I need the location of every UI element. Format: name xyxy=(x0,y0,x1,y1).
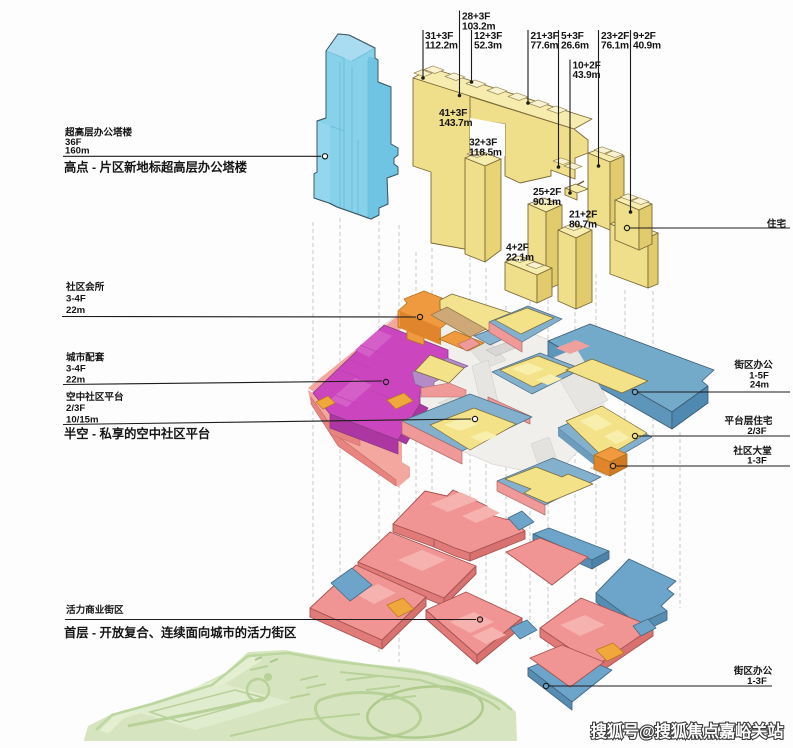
svg-text:城市配套: 城市配套 xyxy=(66,352,105,364)
svg-text:高点 - 片区新地标超高层办公塔楼: 高点 - 片区新地标超高层办公塔楼 xyxy=(64,160,248,175)
svg-text:半空 - 私享的空中社区平台: 半空 - 私享的空中社区平台 xyxy=(64,426,210,441)
svg-text:搜狐号@搜狐焦点嘉峪关站: 搜狐号@搜狐焦点嘉峪关站 xyxy=(591,722,784,741)
svg-text:43.9m: 43.9m xyxy=(573,70,601,81)
svg-text:24m: 24m xyxy=(750,380,769,391)
svg-text:40.9m: 40.9m xyxy=(633,41,661,52)
svg-text:26.6m: 26.6m xyxy=(561,41,589,52)
svg-text:1-3F: 1-3F xyxy=(747,456,767,467)
svg-text:76.1m: 76.1m xyxy=(601,41,629,52)
svg-text:3-4F: 3-4F xyxy=(66,294,86,305)
svg-text:22m: 22m xyxy=(66,305,85,316)
svg-text:街区办公: 街区办公 xyxy=(733,359,773,371)
svg-text:2/3F: 2/3F xyxy=(66,403,85,414)
svg-text:1-3F: 1-3F xyxy=(747,676,767,687)
svg-text:22.1m: 22.1m xyxy=(506,252,534,263)
svg-text:首层 - 开放复合、连续面向城市的活力街区: 首层 - 开放复合、连续面向城市的活力街区 xyxy=(64,625,296,640)
svg-text:118.5m: 118.5m xyxy=(469,147,502,158)
svg-text:社区会所: 社区会所 xyxy=(65,281,105,293)
svg-text:52.3m: 52.3m xyxy=(474,41,502,52)
svg-text:3-4F: 3-4F xyxy=(66,364,86,375)
svg-text:2/3F: 2/3F xyxy=(747,426,766,437)
svg-text:160m: 160m xyxy=(65,146,90,157)
svg-text:143.7m: 143.7m xyxy=(439,118,472,129)
svg-text:77.6m: 77.6m xyxy=(531,41,559,52)
svg-text:112.2m: 112.2m xyxy=(425,41,458,52)
svg-text:90.1m: 90.1m xyxy=(533,197,561,208)
svg-text:80.7m: 80.7m xyxy=(569,219,597,230)
svg-text:空中社区平台: 空中社区平台 xyxy=(66,391,124,403)
svg-text:活力商业街区: 活力商业街区 xyxy=(66,604,124,616)
